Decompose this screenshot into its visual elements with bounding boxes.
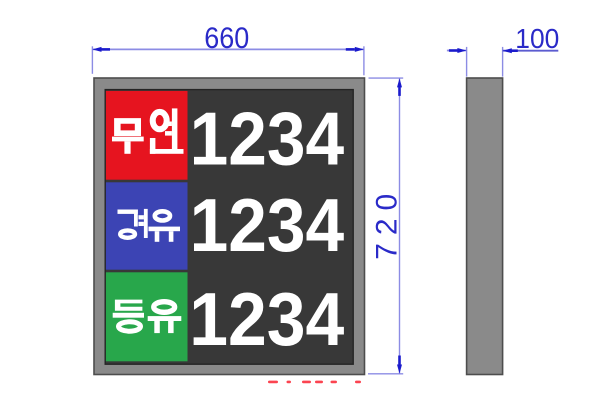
svg-text:720: 720 [370,194,403,260]
svg-text:1234: 1234 [190,183,345,267]
svg-text:1234: 1234 [190,97,345,181]
svg-text:660: 660 [204,22,249,55]
svg-text:100: 100 [515,23,559,54]
svg-text:1234: 1234 [189,277,344,361]
